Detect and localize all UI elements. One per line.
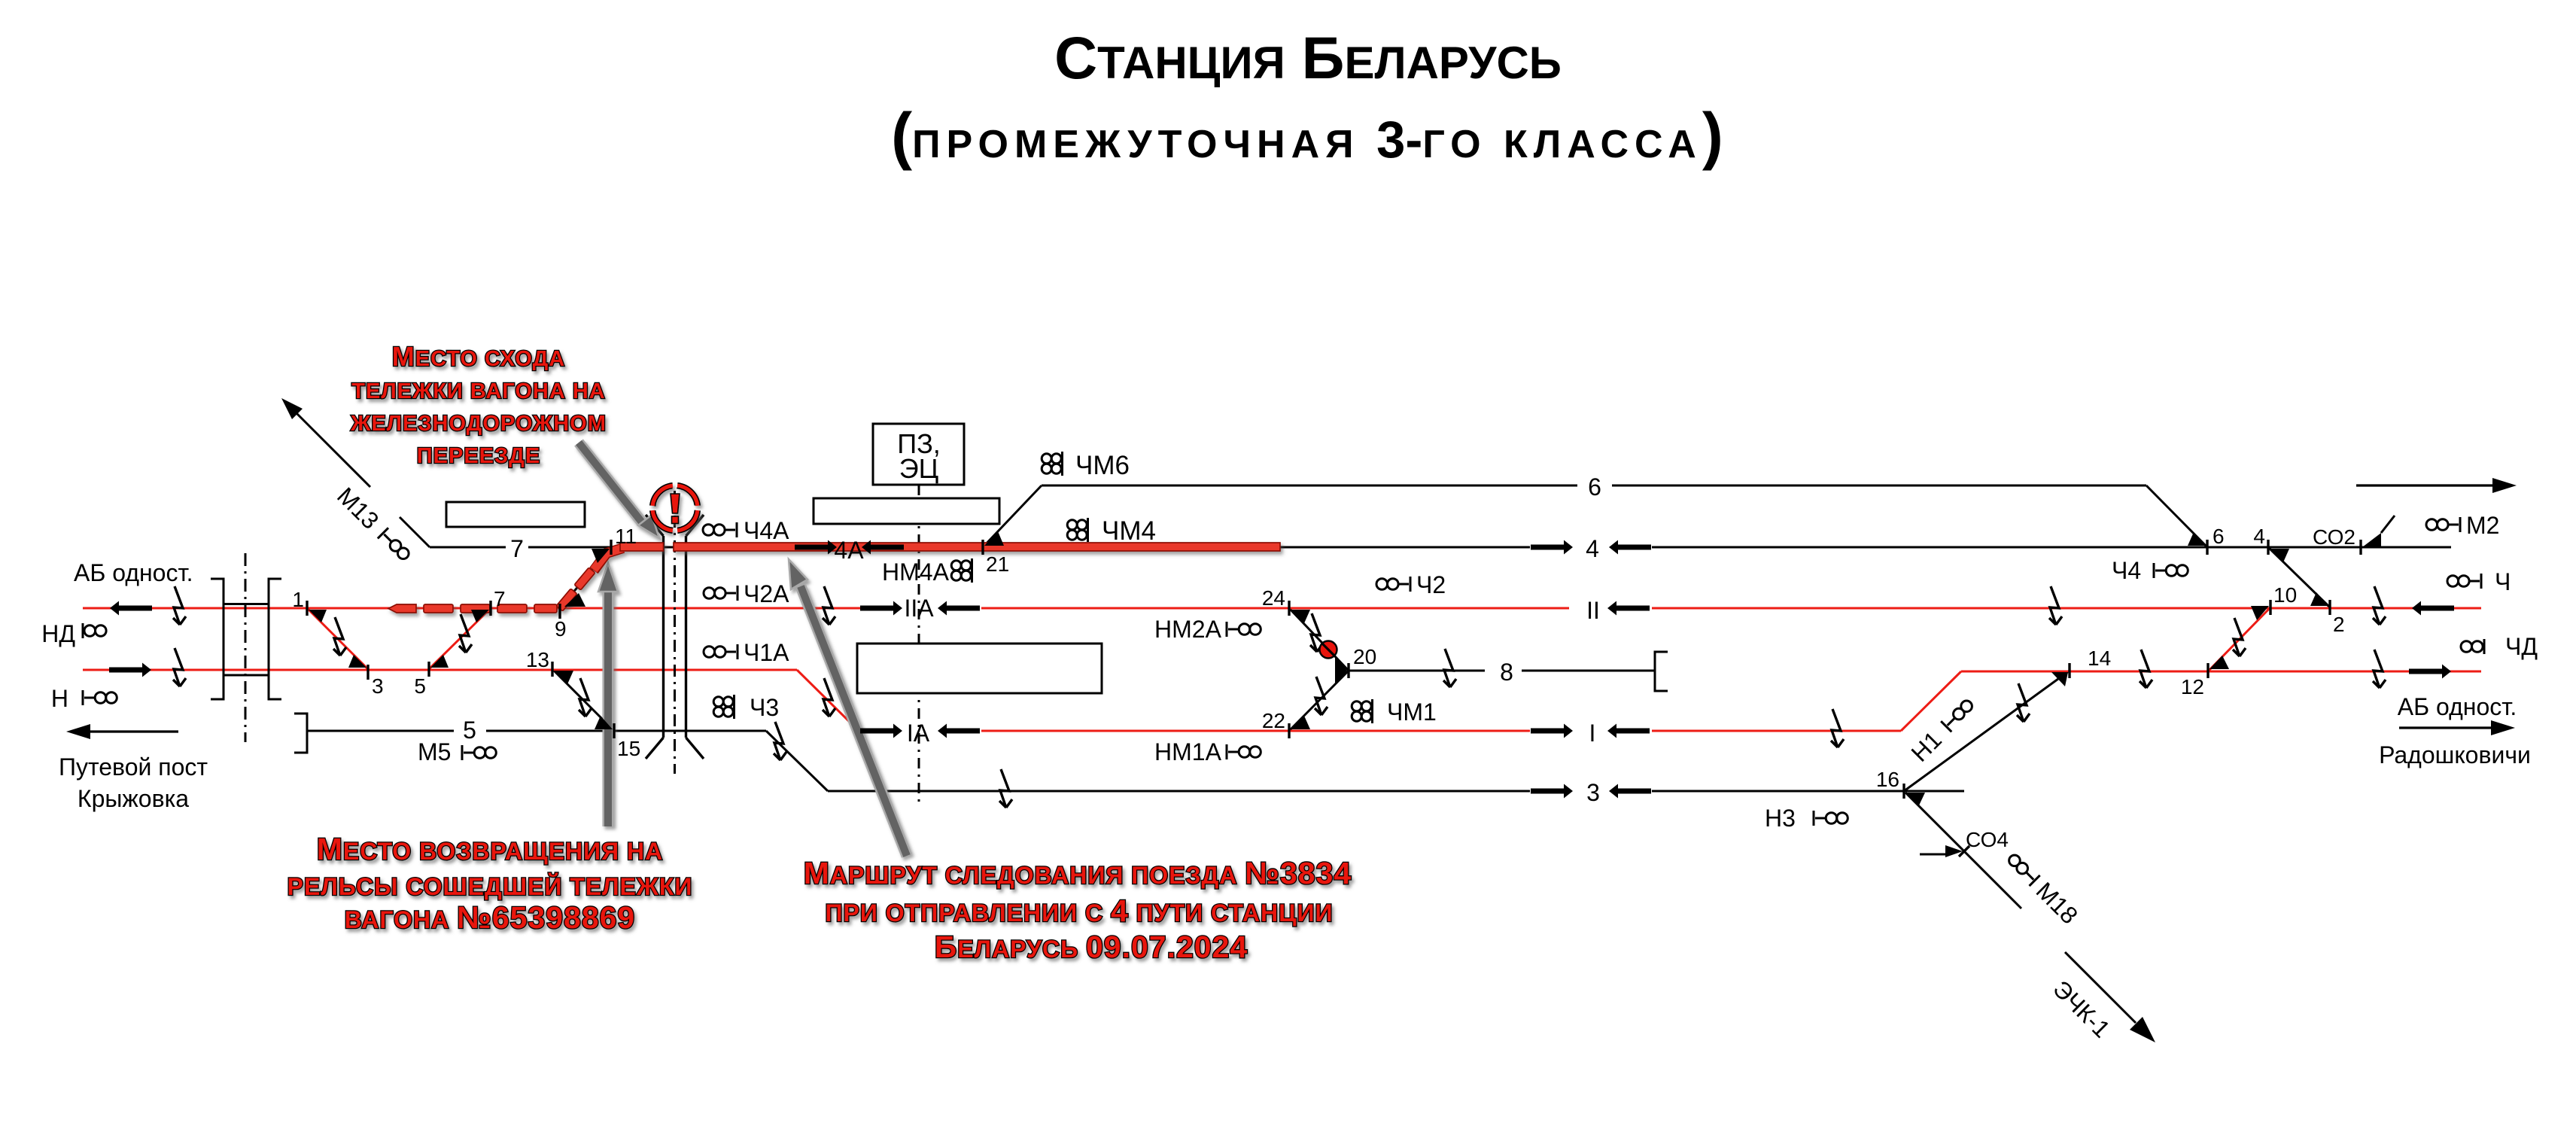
svg-text:ЧМ6: ЧМ6: [1075, 451, 1130, 480]
svg-text:СТАНЦИЯ БЕЛАРУСЬ: СТАНЦИЯ БЕЛАРУСЬ: [1054, 24, 1562, 91]
svg-text:24: 24: [1262, 586, 1285, 610]
svg-text:СО2: СО2: [2313, 525, 2356, 549]
svg-text:2: 2: [2333, 613, 2345, 636]
svg-text:НД: НД: [41, 620, 75, 647]
svg-text:Ч4А: Ч4А: [744, 517, 789, 544]
svg-text:МЕСТО ВОЗВРАЩЕНИЯ НА: МЕСТО ВОЗВРАЩЕНИЯ НА: [317, 832, 664, 866]
svg-text:3: 3: [372, 674, 384, 698]
svg-text:М2: М2: [2466, 512, 2499, 539]
svg-text:4: 4: [2253, 525, 2265, 548]
svg-text:14: 14: [2088, 647, 2111, 670]
svg-text:ПЕРЕЕЗДЕ: ПЕРЕЕЗДЕ: [417, 444, 540, 468]
svg-text:7: 7: [510, 535, 524, 562]
svg-text:БЕЛАРУСЬ 09.07.2024: БЕЛАРУСЬ 09.07.2024: [935, 930, 1248, 964]
svg-text:Н3: Н3: [1765, 805, 1796, 832]
svg-text:М13: М13: [332, 482, 384, 534]
svg-text:II: II: [1586, 597, 1600, 624]
svg-text:4: 4: [1586, 535, 1599, 562]
svg-text:Н1: Н1: [1905, 726, 1946, 767]
svg-text:12: 12: [2181, 675, 2204, 698]
svg-text:20: 20: [1353, 645, 1376, 668]
svg-text:22: 22: [1262, 709, 1285, 732]
svg-text:9: 9: [555, 617, 567, 641]
svg-text:ЧМ1: ЧМ1: [1387, 698, 1437, 726]
svg-text:МЕСТО СХОДА: МЕСТО СХОДА: [392, 341, 565, 372]
svg-text:3: 3: [1586, 779, 1600, 806]
svg-text:(ПРОМЕЖУТОЧНАЯ 3-ГО КЛАССА): (ПРОМЕЖУТОЧНАЯ 3-ГО КЛАССА): [891, 100, 1723, 171]
svg-text:11: 11: [615, 525, 637, 548]
svg-text:Ч1А: Ч1А: [744, 639, 789, 666]
svg-text:6: 6: [1588, 473, 1601, 501]
svg-text:РЕЛЬСЫ СОШЕДШЕЙ ТЕЛЕЖКИ: РЕЛЬСЫ СОШЕДШЕЙ ТЕЛЕЖКИ: [287, 873, 693, 900]
svg-text:АБ одност.: АБ одност.: [74, 559, 193, 586]
svg-text:10: 10: [2273, 583, 2297, 607]
svg-text:15: 15: [617, 737, 640, 760]
svg-text:Ч4: Ч4: [2112, 557, 2141, 584]
svg-text:Ч2А: Ч2А: [744, 580, 789, 607]
svg-text:Крыжовка: Крыжовка: [78, 785, 189, 812]
svg-text:М18: М18: [2031, 877, 2083, 929]
svg-text:ЧМ4: ЧМ4: [1102, 516, 1156, 546]
svg-text:М5: М5: [418, 738, 451, 765]
svg-text:Путевой пост: Путевой пост: [59, 753, 208, 781]
svg-text:Н: Н: [51, 685, 68, 712]
svg-text:ЖЕЛЕЗНОДОРОЖНОМ: ЖЕЛЕЗНОДОРОЖНОМ: [350, 412, 607, 436]
svg-text:НМ2А: НМ2А: [1154, 616, 1222, 643]
svg-text:Ч: Ч: [2495, 568, 2511, 595]
svg-text:I: I: [1589, 720, 1596, 747]
svg-text:МАРШРУТ СЛЕДОВАНИЯ ПОЕЗДА №383: МАРШРУТ СЛЕДОВАНИЯ ПОЕЗДА №3834: [804, 856, 1352, 890]
svg-text:Ч3: Ч3: [750, 694, 779, 721]
svg-text:7: 7: [494, 587, 506, 610]
svg-text:4А: 4А: [834, 537, 864, 564]
svg-text:АБ одност.: АБ одност.: [2398, 693, 2517, 720]
svg-text:ПРИ ОТПРАВЛЕНИИ С 4 ПУТИ СТАНЦ: ПРИ ОТПРАВЛЕНИИ С 4 ПУТИ СТАНЦИИ: [826, 893, 1334, 928]
svg-text:ЭЧК-1: ЭЧК-1: [2048, 975, 2115, 1042]
svg-text:ЭЦ: ЭЦ: [899, 453, 939, 484]
svg-text:IIА: IIА: [904, 595, 934, 622]
svg-text:НМ4А: НМ4А: [882, 558, 950, 586]
svg-text:16: 16: [1876, 768, 1899, 791]
svg-text:НМ1А: НМ1А: [1154, 738, 1222, 765]
svg-text:5: 5: [414, 674, 426, 698]
svg-text:6: 6: [2213, 525, 2225, 548]
svg-text:ТЕЛЕЖКИ ВАГОНА НА: ТЕЛЕЖКИ ВАГОНА НА: [351, 379, 605, 403]
svg-text:Ч2: Ч2: [1416, 571, 1446, 598]
svg-text:5: 5: [463, 717, 476, 744]
svg-text:13: 13: [526, 648, 549, 671]
svg-text:СО4: СО4: [1966, 828, 2009, 851]
svg-text:8: 8: [1500, 659, 1513, 686]
svg-text:IА: IА: [907, 720, 930, 747]
svg-text:ВАГОНА №65398869: ВАГОНА №65398869: [345, 900, 635, 935]
svg-text:1: 1: [292, 588, 304, 611]
svg-text:21: 21: [986, 552, 1009, 576]
svg-text:ЧД: ЧД: [2505, 633, 2538, 660]
svg-text:Радошковичи: Радошковичи: [2379, 741, 2531, 768]
